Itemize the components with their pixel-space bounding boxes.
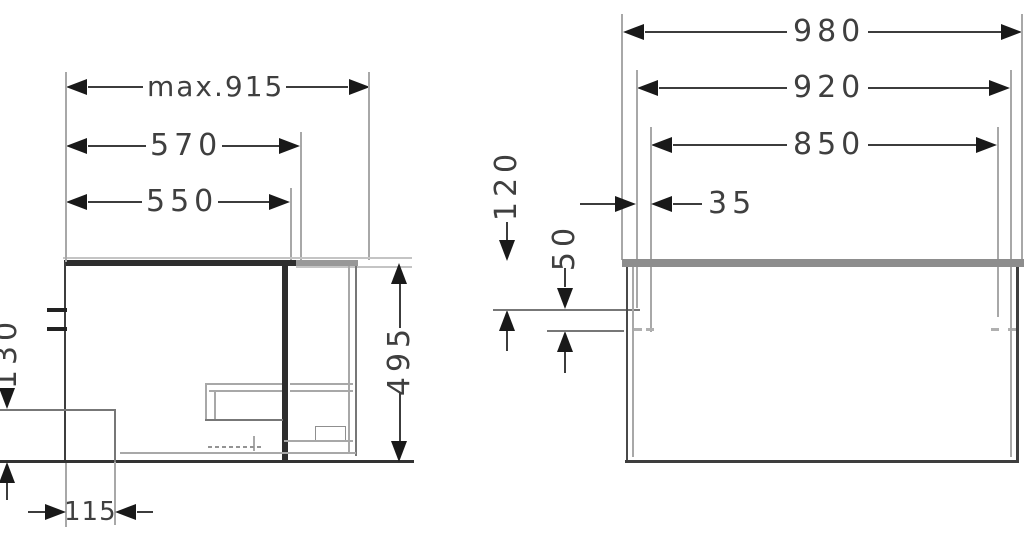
cabinet-right-inner-line bbox=[1010, 267, 1012, 457]
cabinet-bottom-line bbox=[625, 460, 1019, 463]
dim-arrow-left-icon bbox=[651, 137, 672, 153]
cabinet-left-edge bbox=[626, 267, 628, 462]
dim-line bbox=[868, 87, 989, 89]
cabinet-right-edge bbox=[1016, 267, 1019, 462]
dim-label-570: 570 bbox=[150, 131, 222, 161]
dim-label-115: 115 bbox=[64, 499, 117, 525]
drawer-line bbox=[205, 419, 283, 421]
drawer-line bbox=[290, 383, 353, 385]
countertop-front bbox=[622, 259, 1024, 267]
drawer-line bbox=[253, 436, 255, 451]
dim-line bbox=[673, 144, 787, 146]
dim-arrow-right-icon bbox=[989, 80, 1010, 96]
cabinet-bottom-line bbox=[0, 460, 414, 463]
dim-label-max915: max.915 bbox=[147, 73, 284, 101]
extension-line bbox=[368, 72, 370, 260]
dim-line bbox=[222, 145, 279, 147]
dim-arrow-right-icon bbox=[269, 194, 290, 210]
dim-arrow-up-icon bbox=[0, 462, 15, 483]
drawer-hatch-line bbox=[208, 446, 264, 448]
reference-line bbox=[547, 330, 624, 332]
dim-arrow-right-icon bbox=[976, 137, 997, 153]
dim-label-850: 850 bbox=[793, 130, 865, 160]
extension-line bbox=[636, 70, 638, 308]
dim-arrow-left-icon bbox=[637, 80, 658, 96]
dim-label-550: 550 bbox=[146, 187, 218, 217]
dim-arrow-up-icon bbox=[557, 331, 573, 352]
dim-arrow-down-icon bbox=[391, 441, 407, 462]
dim-arrow-left-icon bbox=[66, 138, 87, 154]
dim-arrow-left-icon bbox=[623, 24, 644, 40]
fixing-hole-mark bbox=[991, 328, 999, 331]
dim-label-980: 980 bbox=[793, 17, 865, 47]
cabinet-right-inner-line bbox=[348, 266, 350, 452]
dim-line bbox=[137, 511, 153, 513]
dim-line bbox=[399, 393, 401, 442]
extension-line bbox=[997, 127, 999, 317]
fixing-hole-mark bbox=[634, 328, 642, 331]
dim-line bbox=[506, 331, 508, 351]
dim-line bbox=[645, 31, 787, 33]
dim-arrow-up-icon bbox=[391, 263, 407, 284]
dim-arrow-right-icon bbox=[45, 504, 66, 520]
drawer-line bbox=[290, 390, 353, 392]
dim-line bbox=[868, 31, 1001, 33]
drawer-line bbox=[284, 440, 353, 442]
extension-line bbox=[650, 127, 652, 332]
dim-arrow-left-icon bbox=[66, 194, 87, 210]
cabinet-left-inner-line bbox=[632, 267, 634, 457]
dim-arrow-down-icon bbox=[0, 388, 15, 409]
dim-arrow-down-icon bbox=[499, 240, 515, 261]
dim-line bbox=[28, 511, 45, 513]
dim-line bbox=[286, 86, 348, 88]
dim-arrow-up-icon bbox=[499, 310, 515, 331]
dim-arrow-right-icon bbox=[349, 79, 370, 95]
countertop-section bbox=[64, 260, 296, 266]
cutout-side-line bbox=[114, 409, 116, 462]
dim-arrow-left-icon bbox=[115, 504, 136, 520]
fixing-mark bbox=[47, 327, 67, 331]
extension-line bbox=[1010, 70, 1012, 260]
dim-arrow-down-icon bbox=[557, 288, 573, 309]
cabinet-bottom-inner-line bbox=[120, 452, 356, 454]
dim-arrow-right-icon bbox=[279, 138, 300, 154]
dim-line bbox=[88, 86, 143, 88]
countertop-top-line bbox=[63, 257, 412, 259]
extension-line bbox=[621, 14, 623, 260]
dim-line bbox=[6, 483, 8, 500]
extension-line bbox=[1021, 14, 1023, 260]
dim-line bbox=[218, 201, 269, 203]
dim-arrow-right-icon bbox=[1001, 24, 1022, 40]
drawer-line bbox=[209, 390, 282, 392]
drawer-line bbox=[205, 383, 207, 421]
dim-line bbox=[88, 201, 142, 203]
cabinet-left-edge bbox=[64, 262, 66, 462]
dim-arrow-left-icon bbox=[66, 79, 87, 95]
extension-line bbox=[290, 188, 292, 262]
dim-arrow-right-icon bbox=[615, 196, 636, 212]
dim-label-920: 920 bbox=[793, 73, 865, 103]
basin-rear-panel bbox=[282, 263, 288, 462]
technical-drawing-canvas: max.915 570 550 495 13 bbox=[0, 0, 1024, 552]
dim-line bbox=[673, 203, 702, 205]
dim-line bbox=[868, 144, 976, 146]
dim-arrow-left-icon bbox=[651, 196, 672, 212]
dim-label-35: 35 bbox=[708, 189, 756, 219]
dim-line bbox=[580, 203, 615, 205]
cabinet-right-edge bbox=[355, 266, 357, 456]
drawer-line bbox=[214, 392, 216, 419]
dim-line bbox=[564, 352, 566, 373]
extension-line bbox=[300, 132, 302, 262]
extension-line bbox=[65, 72, 67, 262]
fixing-mark bbox=[47, 308, 67, 312]
siphon-box bbox=[315, 426, 346, 441]
dim-line bbox=[88, 145, 146, 147]
dim-line bbox=[659, 87, 787, 89]
reference-line bbox=[493, 309, 640, 311]
dim-line bbox=[506, 222, 508, 240]
dim-line bbox=[564, 268, 566, 287]
drawer-line bbox=[205, 383, 282, 385]
fixing-hole-mark bbox=[646, 328, 654, 331]
